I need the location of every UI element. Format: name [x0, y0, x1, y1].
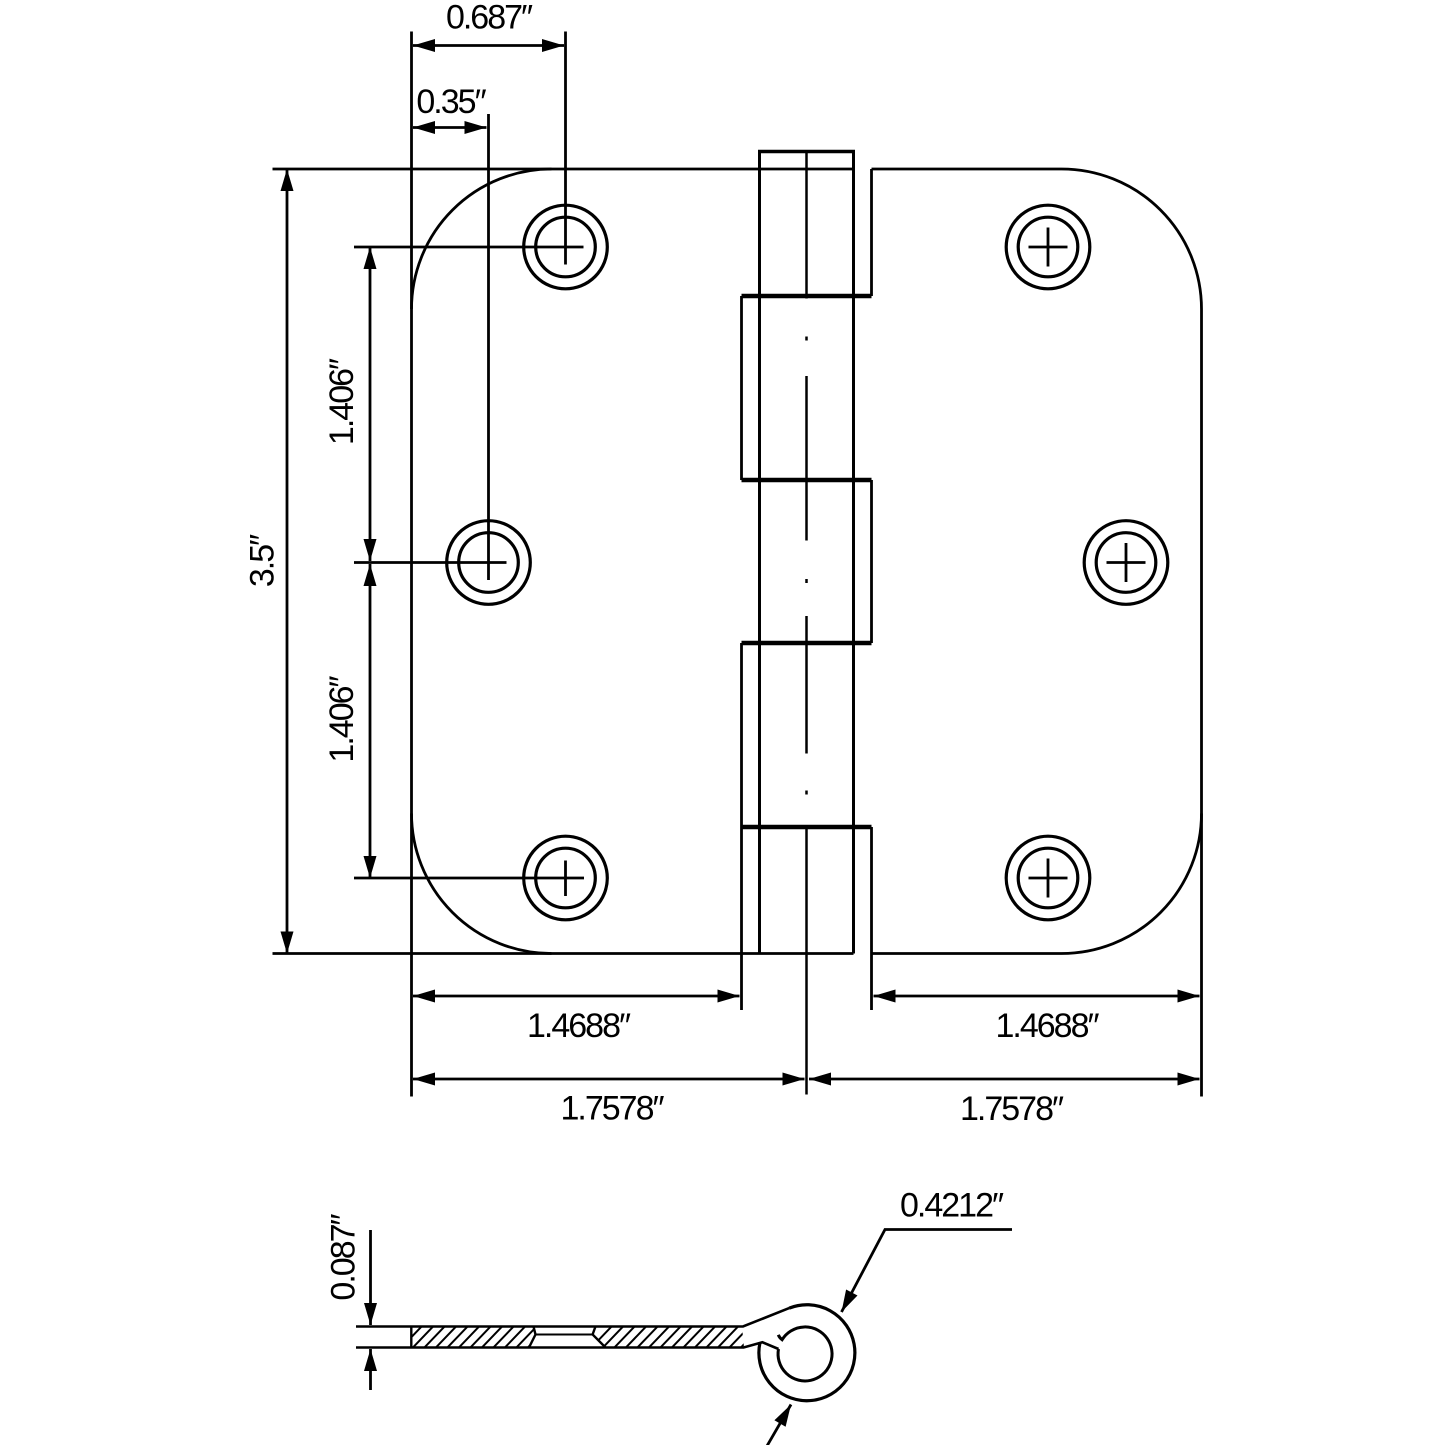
svg-text:0.687″: 0.687″	[446, 0, 533, 37]
svg-text:1.4688″: 1.4688″	[527, 1007, 631, 1045]
svg-text:1.406″: 1.406″	[323, 675, 361, 762]
svg-text:0.4212″: 0.4212″	[900, 1187, 1004, 1225]
svg-text:1.7578″: 1.7578″	[960, 1090, 1064, 1128]
svg-text:1.7578″: 1.7578″	[560, 1090, 664, 1128]
svg-text:1.4688″: 1.4688″	[995, 1007, 1099, 1045]
svg-text:1.406″: 1.406″	[323, 358, 361, 445]
svg-text:0.35″: 0.35″	[416, 83, 486, 121]
svg-text:0.087″: 0.087″	[325, 1213, 363, 1300]
svg-text:3.5″: 3.5″	[244, 534, 282, 587]
